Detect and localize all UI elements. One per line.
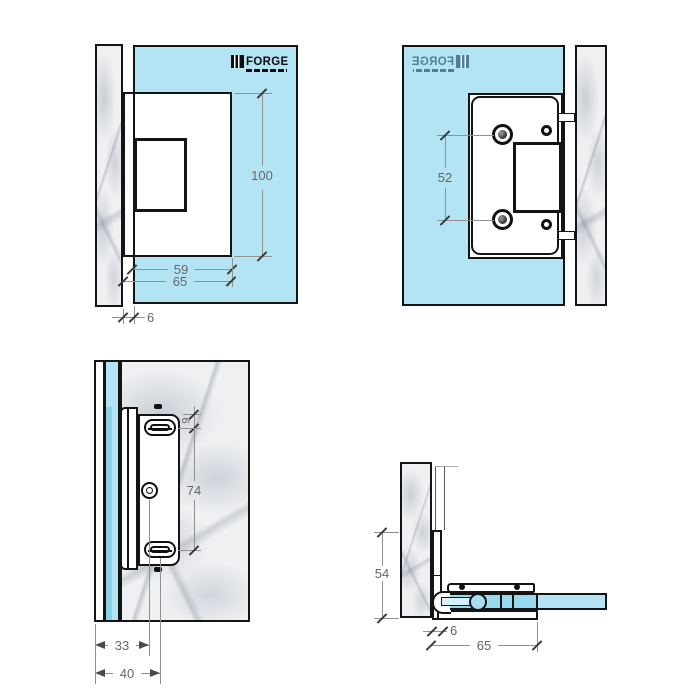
dim-arrow <box>139 641 149 649</box>
dim-label: 54 <box>368 566 396 581</box>
dim-line <box>262 190 263 256</box>
bottom-clamp-plate <box>437 610 538 620</box>
extension-line <box>435 466 458 467</box>
hinge-body-edge <box>536 595 538 608</box>
dim-line <box>194 281 231 282</box>
extension-line <box>234 256 272 257</box>
wall-marble <box>95 44 123 307</box>
hinge-knuckle-cutout <box>513 142 561 213</box>
dim-line <box>445 135 446 168</box>
dim-line <box>262 93 263 166</box>
logo-mark-icon <box>231 55 244 68</box>
logo-mark-icon <box>456 55 469 68</box>
glass-edge-shade <box>106 407 112 620</box>
logo-wordmark: FORGE <box>246 54 288 68</box>
extension-line <box>374 618 399 619</box>
extension-line <box>149 500 150 656</box>
dim-arrow <box>150 669 160 677</box>
hinge-technical-drawing: FORGE 100 59 65 <box>0 0 700 700</box>
slotted-hole-icon <box>144 419 176 436</box>
dim-label: 74 <box>180 483 208 498</box>
extension-line <box>537 622 538 652</box>
dim-line <box>132 269 168 270</box>
pin-hole-icon <box>541 125 552 136</box>
dim-line <box>445 188 446 220</box>
extension-line <box>374 532 399 533</box>
hinge-clamp-side <box>120 407 138 570</box>
pivot-circle <box>469 593 487 611</box>
pin-hole-icon <box>541 219 552 230</box>
clamp-pin <box>558 113 575 122</box>
extension-line <box>160 558 161 684</box>
plate-joint-line <box>433 575 441 576</box>
dim-line <box>194 428 195 481</box>
extension-line <box>232 258 233 287</box>
logo-tagline <box>413 69 454 72</box>
clamp-block-line <box>512 595 514 608</box>
adjustment-hole-icon <box>141 482 158 499</box>
mounting-screw-icon <box>492 209 513 230</box>
dim-label: 6 <box>450 623 457 638</box>
dim-arrow <box>95 669 105 677</box>
plate-outline-hidden <box>444 466 445 530</box>
clamp-pin <box>558 231 575 240</box>
dim-arrow <box>95 641 105 649</box>
dim-label: 100 <box>246 168 278 183</box>
clamp-screw-dot <box>459 584 465 590</box>
wall-marble <box>575 45 607 306</box>
plate-outline-hidden <box>435 466 436 530</box>
screw-tip <box>154 404 162 409</box>
mounting-screw-icon <box>492 124 513 145</box>
dim-line <box>194 269 232 270</box>
clamp-joint-line <box>127 409 129 568</box>
dim-line <box>123 281 166 282</box>
dim-line <box>194 500 195 550</box>
extension-line <box>234 93 272 94</box>
extension-line <box>178 550 201 551</box>
forge-logo: FORGE <box>231 54 293 76</box>
dim-label: 52 <box>431 170 459 185</box>
hinge-knuckle-cutout <box>135 138 187 212</box>
dim-line <box>112 317 145 318</box>
dim-label: 65 <box>166 274 194 289</box>
dim-label: 40 <box>113 666 141 681</box>
dim-label: 65 <box>470 638 498 653</box>
dim-label: 33 <box>108 638 136 653</box>
clamp-screw-dot <box>514 584 520 590</box>
extension-line <box>178 428 201 429</box>
clamp-block-line <box>500 595 502 608</box>
wall-marble <box>400 462 432 618</box>
dim-label: 6 <box>147 310 154 325</box>
dim-label: 9 <box>180 414 195 428</box>
logo-wordmark: FORGE <box>412 54 454 68</box>
logo-tagline <box>246 69 287 72</box>
forge-logo-mirrored: FORGE <box>407 54 469 76</box>
